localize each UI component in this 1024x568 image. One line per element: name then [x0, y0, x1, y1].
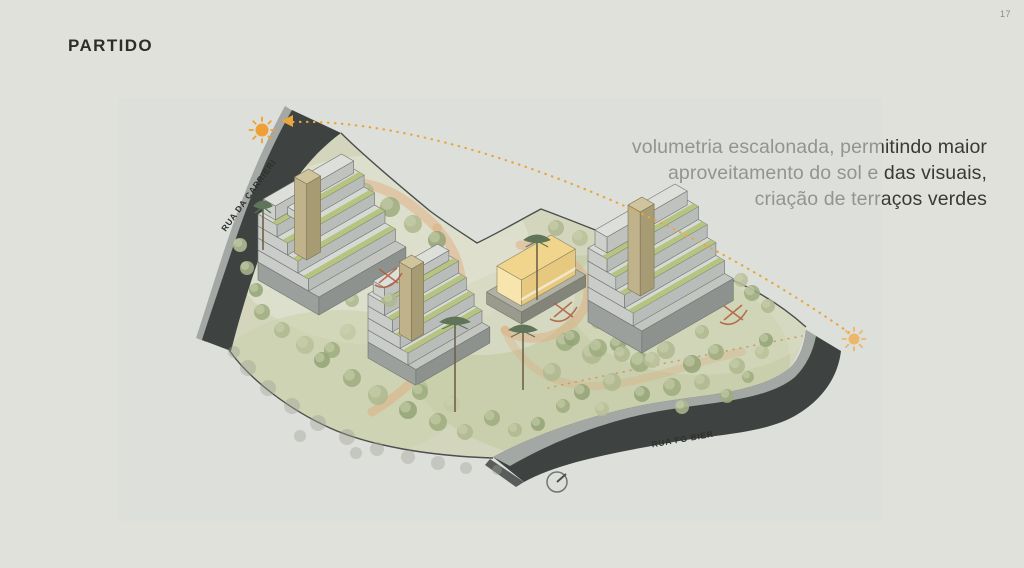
site-diagram: RUA DA CARRIERI RUA FG BIER	[0, 0, 1024, 568]
presentation-slide: PARTIDO 17 volumetria escalonada, permit…	[0, 0, 1024, 568]
